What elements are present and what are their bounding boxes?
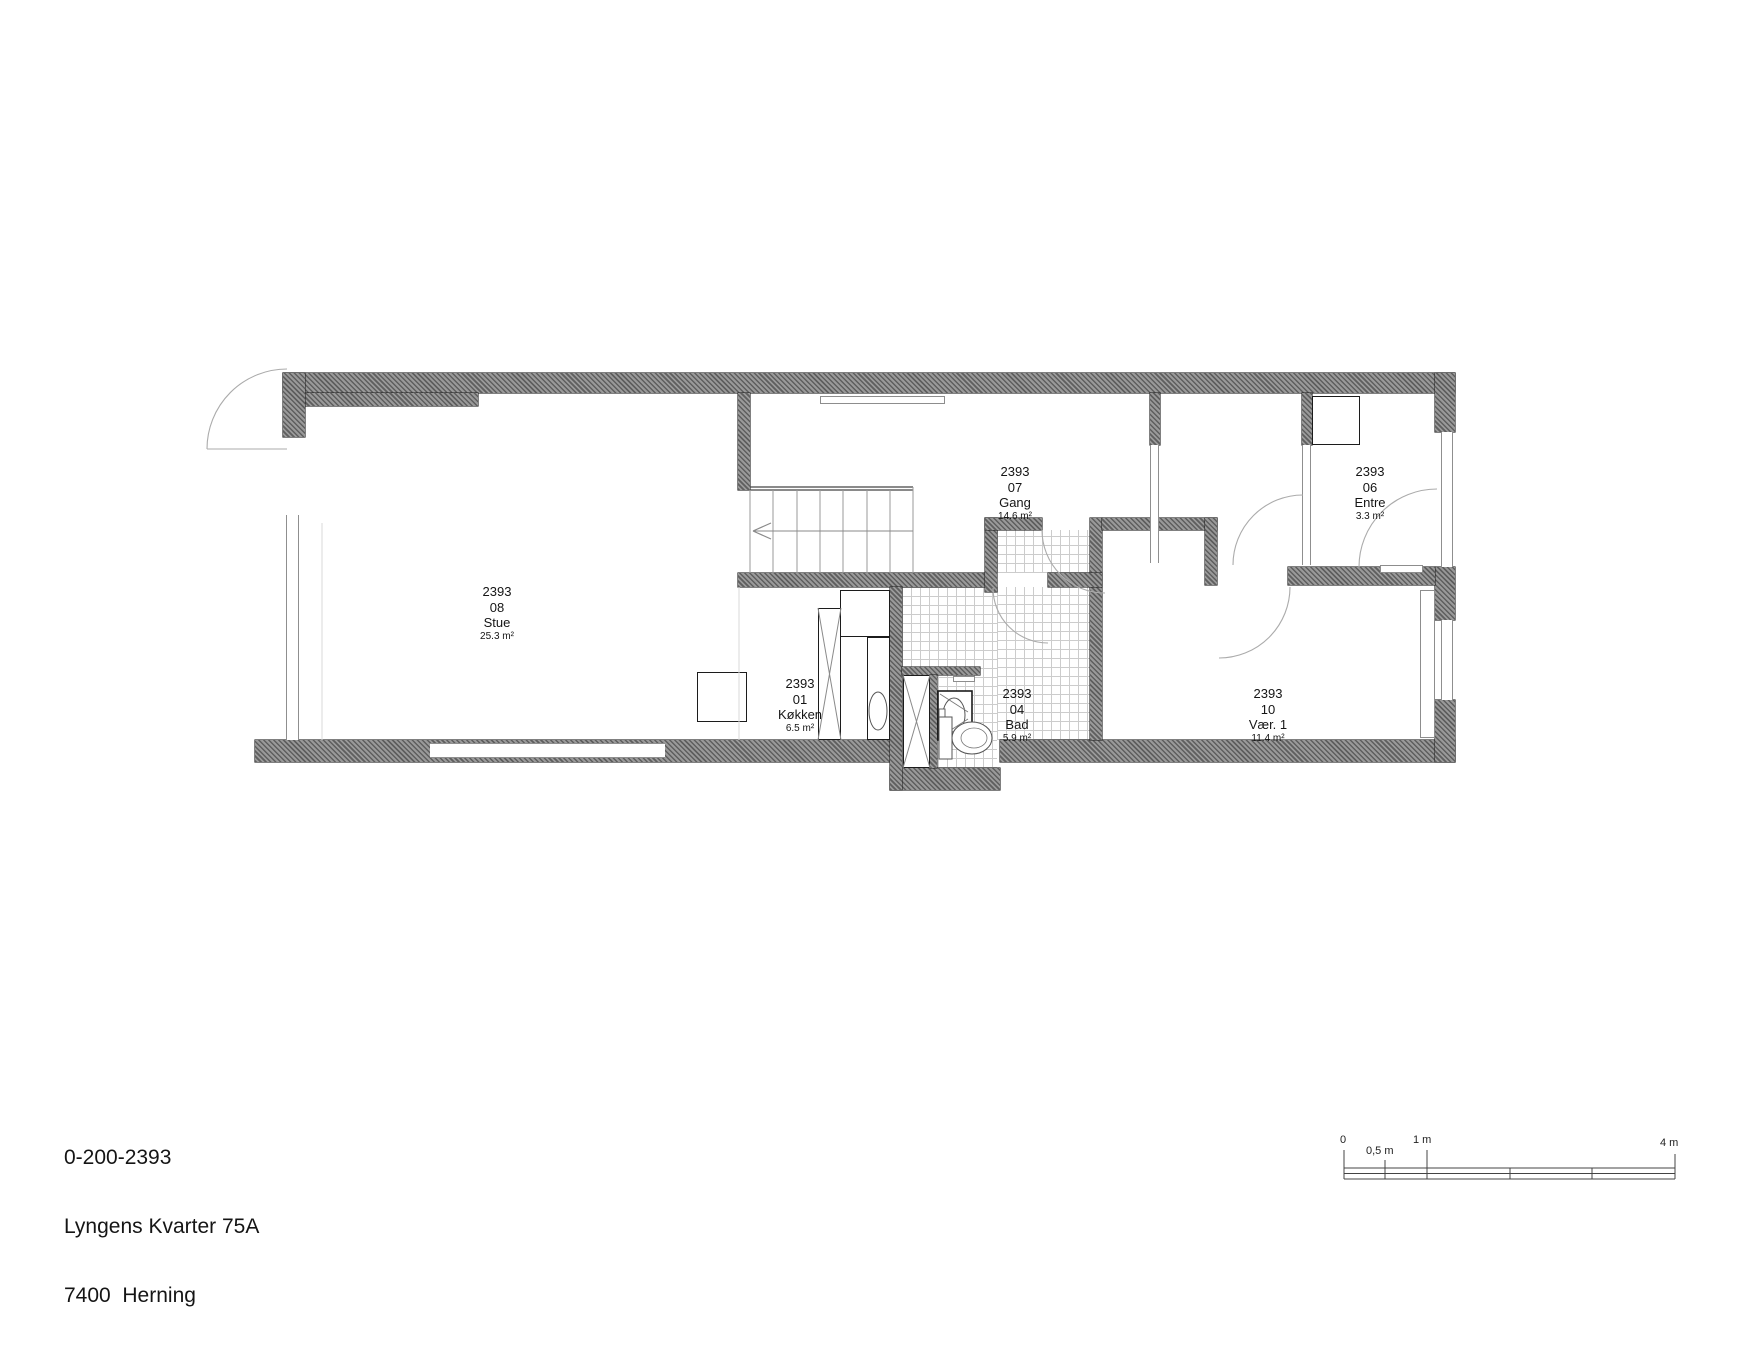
room-id: 2393 [940,464,1090,480]
room-name: Entre [1295,495,1445,511]
city: 7400 Herning [64,1284,259,1307]
room-area: 5.9 m² [942,733,1092,745]
room-label-gang: 2393 07 Gang 14.6 m² [940,464,1090,523]
gang-entre-door-arc [1233,495,1303,565]
room-area: 3.3 m² [1295,511,1445,523]
room-area: 25.3 m² [422,631,572,643]
room-id: 2393 [942,686,1092,702]
address: Lyngens Kvarter 75A [64,1215,259,1238]
scale-label-0-5m: 0,5 m [1366,1145,1394,1157]
room-area: 11.4 m² [1193,733,1343,745]
scale-label-0: 0 [1340,1134,1346,1146]
stairs [750,487,913,573]
room-label-entre: 2393 06 Entre 3.3 m² [1295,464,1445,523]
floor-plan: 2393 08 Stue 25.3 m² 2393 01 Køkken 6.5 … [0,0,1737,1228]
room-id: 2393 [725,676,875,692]
door-arcs [207,369,1437,658]
vaer1-door-arc [1219,587,1290,658]
room-number: 06 [1295,480,1445,496]
stue-exterior-door-arc [207,369,287,449]
scale-bar [1344,1150,1675,1179]
title-block: 0-200-2393 Lyngens Kvarter 75A 7400 Hern… [64,1100,259,1353]
room-label-vaer1: 2393 10 Vær. 1 11.4 m² [1193,686,1343,745]
room-id: 2393 [1193,686,1343,702]
room-label-koekken: 2393 01 Køkken 6.5 m² [725,676,875,735]
room-name: Vær. 1 [1193,717,1343,733]
drawing-number: 0-200-2393 [64,1146,259,1169]
room-id: 2393 [422,584,572,600]
room-number: 07 [940,480,1090,496]
room-number: 01 [725,692,875,708]
room-id: 2393 [1295,464,1445,480]
scale-label-1m: 1 m [1413,1134,1431,1146]
room-name: Køkken [725,707,875,723]
room-name: Stue [422,615,572,631]
room-label-bad: 2393 04 Bad 5.9 m² [942,686,1092,745]
room-name: Bad [942,717,1092,733]
room-label-stue: 2393 08 Stue 25.3 m² [422,584,572,643]
room-area: 14.6 m² [940,511,1090,523]
bad-inner-door-arc [993,588,1048,643]
room-name: Gang [940,495,1090,511]
room-area: 6.5 m² [725,723,875,735]
room-number: 04 [942,702,1092,718]
gang-bad-door-arc [1042,530,1105,593]
scale-label-4m: 4 m [1660,1137,1678,1149]
room-number: 10 [1193,702,1343,718]
room-number: 08 [422,600,572,616]
plan-linework [0,0,1737,1228]
